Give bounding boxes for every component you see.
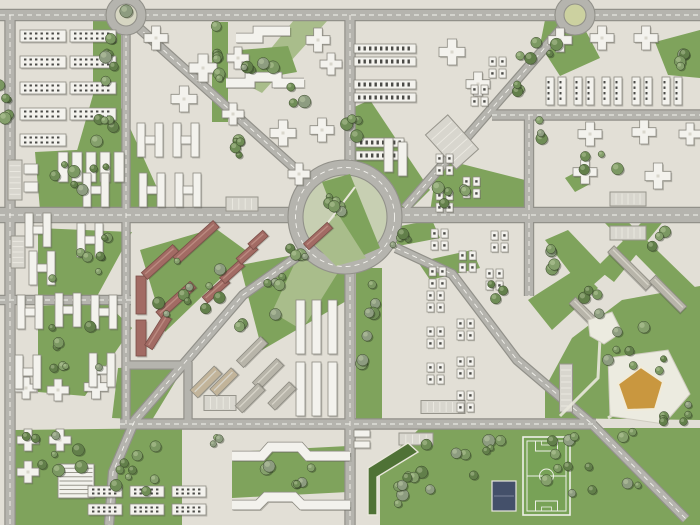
tree-highlight [23, 433, 27, 437]
tree-highlight [202, 304, 207, 309]
tree-highlight [212, 22, 217, 27]
parking-lot [610, 226, 646, 240]
building-slab [296, 362, 306, 418]
tree-highlight [231, 143, 236, 148]
tree-highlight [62, 162, 65, 165]
tree-highlight [648, 242, 653, 247]
tree-highlight [542, 476, 547, 481]
tree-highlight [3, 95, 7, 99]
building-slab [172, 504, 207, 517]
building-slab [130, 504, 165, 517]
tree-highlight [613, 164, 618, 169]
tree-highlight [54, 466, 60, 472]
tree-highlight [594, 291, 598, 295]
tree-highlight [661, 356, 664, 359]
tree-highlight [363, 332, 368, 337]
tree-highlight [422, 440, 427, 445]
tree-highlight [497, 436, 502, 441]
building-slab [558, 77, 567, 107]
building-slab [602, 77, 611, 107]
tree-highlight [97, 253, 101, 257]
tree-highlight [555, 465, 559, 469]
tree-highlight [551, 450, 556, 455]
tree-highlight [242, 65, 245, 68]
parking-lot [11, 236, 25, 268]
tree-highlight [102, 118, 105, 121]
tree-highlight [630, 429, 633, 432]
building-slab [328, 300, 338, 356]
tree-highlight [582, 152, 586, 156]
building-slab [644, 77, 653, 107]
tree-highlight [265, 461, 270, 466]
building-slab [136, 320, 147, 358]
tree-highlight [440, 199, 444, 203]
tree-highlight [102, 77, 106, 81]
tree-highlight [121, 6, 127, 12]
tree-highlight [635, 483, 638, 486]
tree-highlight [175, 259, 178, 262]
building-slab [136, 276, 147, 316]
tree-highlight [154, 298, 159, 303]
tree-highlight [50, 275, 53, 278]
tree-highlight [53, 432, 57, 436]
tree-highlight [63, 364, 66, 367]
tree-highlight [129, 467, 133, 471]
tree-highlight [623, 479, 628, 484]
tree-highlight [216, 436, 220, 440]
tree-highlight [358, 356, 363, 361]
tree-highlight [626, 347, 630, 351]
building-slab [24, 164, 39, 176]
tree-highlight [214, 56, 218, 60]
building-slab [546, 77, 555, 107]
parking-lot [610, 192, 646, 206]
tree-highlight [681, 418, 685, 422]
tree-highlight [349, 115, 353, 119]
tree-highlight [107, 35, 112, 40]
tree-highlight [500, 287, 504, 291]
tree-highlight [271, 310, 276, 315]
tree-highlight [185, 298, 188, 301]
tree-highlight [275, 281, 280, 286]
building-slab [384, 138, 394, 174]
tree-highlight [179, 290, 184, 295]
tree-highlight [216, 265, 221, 270]
tree-highlight [604, 356, 609, 361]
tree-highlight [207, 283, 210, 286]
tree-highlight [151, 442, 156, 447]
tree-highlight [661, 227, 666, 232]
tree-highlight [547, 51, 550, 54]
tree-highlight [236, 322, 241, 327]
tree-highlight [164, 311, 167, 314]
tree-highlight [398, 481, 403, 486]
tree-highlight [484, 448, 487, 451]
tree-highlight [84, 253, 89, 258]
tree-highlight [104, 164, 107, 167]
building-slab [114, 152, 125, 184]
green-area [356, 268, 382, 420]
tree-highlight [92, 136, 97, 141]
tree-highlight [571, 433, 575, 437]
tree-highlight [77, 249, 81, 253]
tree-highlight [526, 54, 531, 59]
tree-highlight [280, 274, 283, 277]
parking-lot [8, 160, 22, 200]
tree-highlight [656, 367, 660, 371]
building-slab [354, 441, 371, 450]
tree-highlight [215, 69, 220, 74]
tree-highlight [101, 52, 107, 58]
tree-highlight [51, 365, 55, 369]
tree-highlight [259, 59, 264, 64]
building-slab [20, 82, 67, 96]
tree-highlight [342, 119, 348, 125]
tree-highlight [102, 235, 105, 238]
tree-highlight [537, 117, 540, 120]
tree-highlight [470, 472, 474, 476]
building-slab [20, 30, 67, 44]
tree-highlight [0, 113, 5, 118]
tree-highlight [681, 50, 686, 55]
tree-highlight [143, 487, 147, 491]
tree-highlight [76, 462, 82, 468]
tree-highlight [630, 362, 634, 366]
tree-highlight [52, 452, 55, 455]
tree-highlight [660, 418, 664, 422]
tree-highlight [619, 433, 624, 438]
tree-highlight [352, 131, 358, 137]
tree-highlight [126, 474, 129, 477]
building-slab [354, 44, 417, 55]
tree-highlight [596, 310, 600, 314]
building-slab [328, 362, 338, 418]
sports-court [492, 481, 516, 511]
building-slab [172, 486, 207, 499]
tree-highlight [552, 39, 558, 45]
tree-highlight [112, 481, 117, 486]
tree-highlight [580, 165, 585, 170]
building-slab [354, 93, 417, 104]
tree-highlight [484, 436, 490, 442]
map-canvas [0, 0, 700, 525]
tree-highlight [492, 295, 497, 300]
building-slab [398, 142, 408, 178]
tree-highlight [234, 139, 237, 142]
tree-highlight [677, 63, 681, 67]
tree-highlight [445, 188, 449, 192]
tree-highlight [462, 187, 467, 192]
tree-highlight [586, 464, 590, 468]
tree-highlight [391, 242, 394, 245]
tree-highlight [417, 467, 423, 473]
tree-highlight [50, 325, 53, 328]
tree-highlight [290, 100, 294, 104]
tree-highlight [580, 293, 585, 298]
tree-highlight [532, 38, 537, 43]
tree-highlight [110, 63, 114, 67]
tree-highlight [366, 309, 370, 313]
building-slab [662, 77, 671, 107]
tree-highlight [96, 269, 99, 272]
building-slab [354, 430, 371, 439]
tree-highlight [327, 194, 330, 197]
tree-highlight [514, 82, 517, 85]
tree-highlight [685, 412, 688, 415]
building-slab [674, 77, 683, 107]
tree-highlight [69, 167, 75, 173]
parking-lot [226, 197, 258, 211]
tree-highlight [452, 449, 457, 454]
tree-highlight [71, 182, 74, 185]
tree-highlight [151, 476, 155, 480]
tree-highlight [294, 481, 297, 484]
tree-highlight [292, 251, 297, 256]
tree-highlight [95, 115, 100, 120]
tree-highlight [211, 441, 214, 444]
tree-highlight [86, 322, 91, 327]
tree-highlight [538, 130, 541, 133]
tree-highlight [91, 166, 94, 169]
tree-highlight [569, 490, 572, 493]
tree-highlight [300, 97, 306, 103]
building-slab [88, 504, 123, 517]
tree-highlight [330, 202, 335, 207]
tree-highlight [585, 287, 589, 291]
tree-highlight [117, 467, 121, 471]
tree-highlight [217, 76, 220, 79]
building-slab [312, 300, 322, 356]
building-slab [574, 77, 583, 107]
tree-highlight [133, 451, 138, 456]
tree-highlight [676, 57, 681, 62]
tree-highlight [51, 172, 56, 177]
building-slab [586, 77, 595, 107]
building-slab [20, 134, 67, 148]
tree-highlight [565, 436, 570, 441]
tree-highlight [517, 52, 521, 56]
building-slab [20, 56, 67, 70]
tree-highlight [656, 233, 660, 237]
tree-highlight [404, 474, 408, 478]
tree-highlight [55, 338, 60, 343]
tree-highlight [614, 347, 617, 350]
tree-highlight [215, 293, 220, 298]
tree-highlight [614, 328, 618, 332]
tree-highlight [550, 260, 555, 265]
tree-highlight [39, 461, 43, 465]
tree-highlight [599, 152, 602, 155]
tree-highlight [74, 445, 79, 450]
tree-highlight [303, 254, 306, 257]
tree-highlight [288, 84, 292, 88]
building-slab [24, 182, 39, 194]
building-slab [312, 362, 322, 418]
tree-highlight [78, 185, 83, 190]
tree-highlight [427, 486, 431, 490]
tree-highlight [549, 437, 554, 442]
tree-highlight [186, 284, 189, 287]
building-slab [632, 77, 641, 107]
tree-highlight [433, 183, 439, 189]
tree-highlight [686, 402, 689, 405]
parking-lot [204, 396, 236, 411]
tree-highlight [308, 465, 312, 469]
tree-highlight [237, 139, 241, 143]
tree-highlight [399, 229, 404, 234]
building-slab [296, 300, 306, 356]
tree-highlight [121, 460, 125, 464]
tree-highlight [395, 501, 398, 504]
tree-highlight [547, 245, 551, 249]
tree-highlight [96, 364, 99, 367]
building-slab [354, 57, 417, 68]
tree-highlight [565, 463, 569, 467]
tree-highlight [32, 435, 36, 439]
city-master-plan-map [0, 0, 700, 525]
tree-highlight [489, 281, 492, 284]
tree-highlight [372, 300, 377, 305]
building-slab [20, 108, 67, 122]
tree-highlight [287, 245, 291, 249]
tree-highlight [265, 280, 269, 284]
building-slab [354, 80, 417, 91]
tree-highlight [369, 281, 373, 285]
building-slab [614, 77, 623, 107]
tree-highlight [589, 486, 593, 490]
tree-highlight [639, 323, 644, 328]
